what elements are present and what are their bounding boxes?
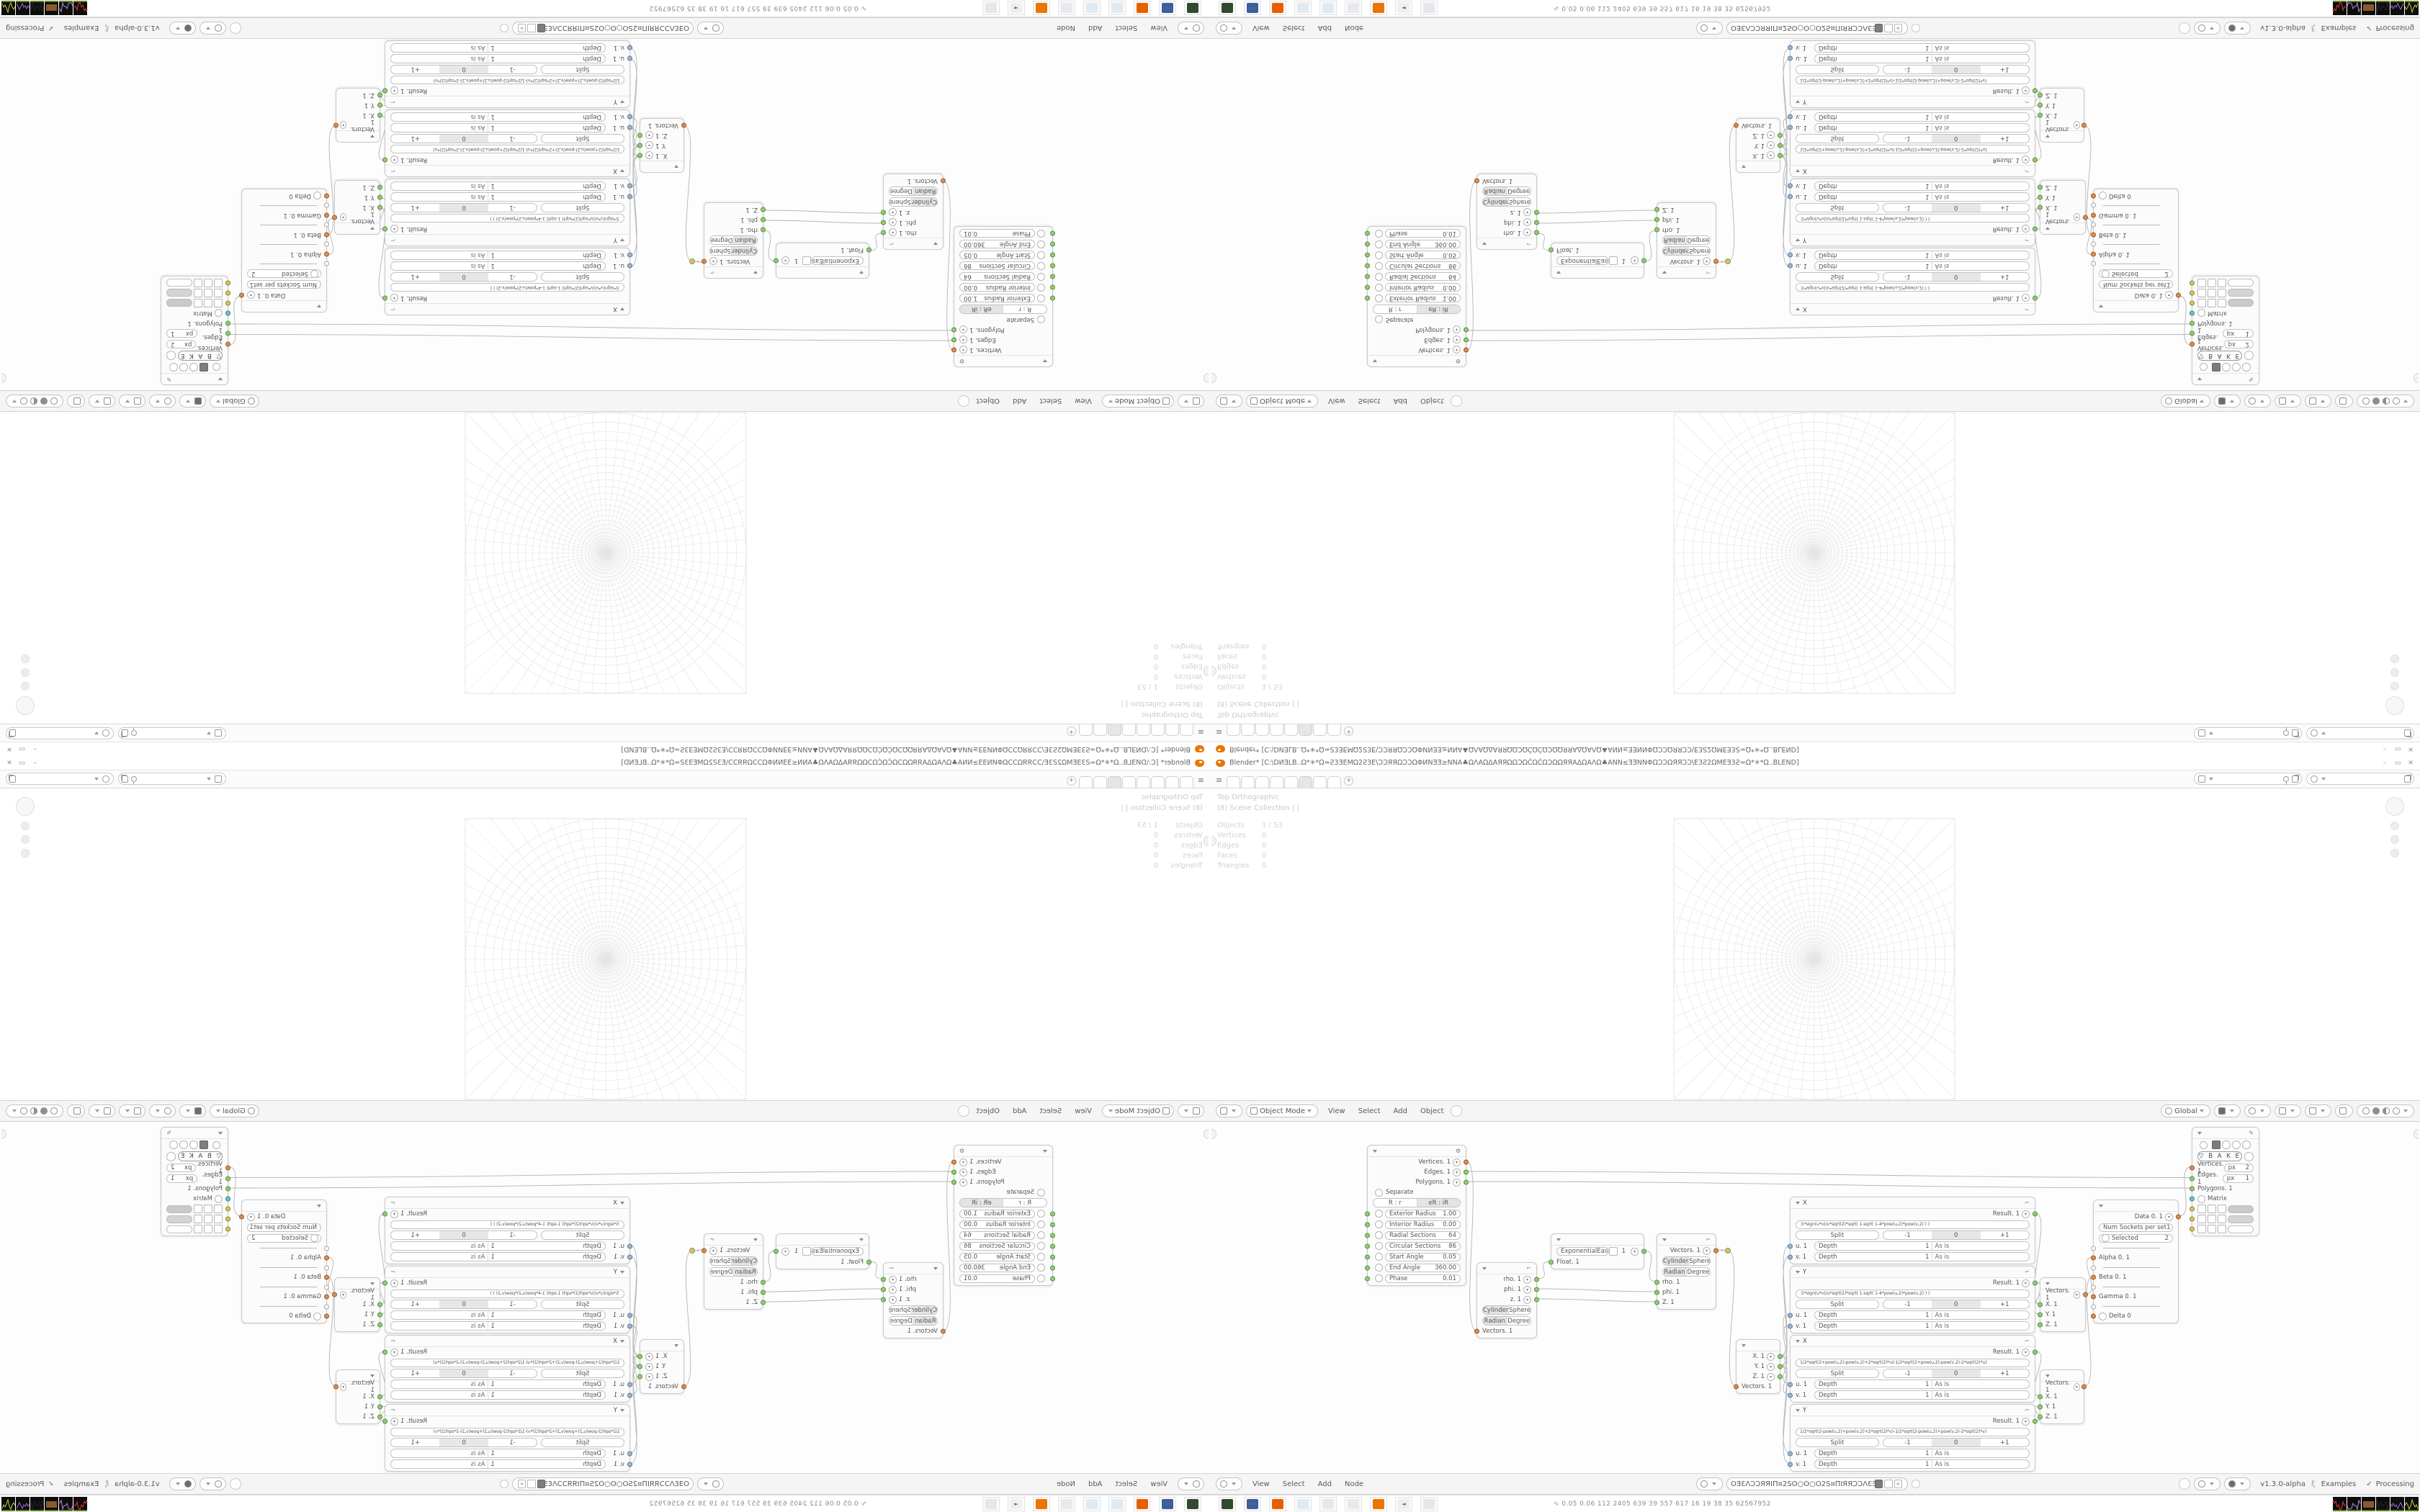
workspace-tab-4[interactable]	[1270, 776, 1283, 788]
add-workspace-button[interactable]: +	[1344, 726, 1353, 736]
firefox-icon[interactable]	[1269, 1, 1286, 16]
shading-material-icon[interactable]	[2383, 1107, 2390, 1115]
move-icon[interactable]	[21, 835, 30, 844]
input-socket[interactable]	[761, 207, 766, 212]
search-circle-button[interactable]	[1451, 1105, 1462, 1117]
vector-polar-output-node[interactable]: ⌐rho. 1▾phi. 1▾z. 1▾CylinderSphereRadian…	[1476, 174, 1537, 250]
formula-field[interactable]: 1/2*sqrt(2+pow(u,2)-pow(v,2)+2*sqrt(2)*u…	[1796, 145, 2030, 154]
draft-mode-button[interactable]	[169, 22, 196, 35]
viewport-3d[interactable]: Top Orthographic (8) Scene Collection | …	[1210, 788, 2420, 1100]
formula-field[interactable]: 1/2*sqrt(2-pow(u,2)+pow(v,2)+2*sqrt(2)*v…	[1796, 1428, 2030, 1436]
node-header[interactable]	[2094, 300, 2178, 312]
disk-utility-icon[interactable]	[1184, 1497, 1201, 1511]
menu-view[interactable]: View	[1150, 1480, 1168, 1488]
minimize-button[interactable]: –	[2380, 759, 2390, 768]
output-socket[interactable]	[2081, 123, 2087, 128]
node-header[interactable]: X⌐	[385, 1197, 629, 1209]
output-socket[interactable]	[1464, 1170, 1469, 1175]
node-header[interactable]: ⌐	[1657, 266, 1716, 278]
proportional-edit-toggle[interactable]	[149, 1104, 176, 1117]
input-socket[interactable]	[761, 1290, 766, 1295]
input-socket[interactable]	[324, 1275, 329, 1280]
input-socket[interactable]	[681, 123, 686, 128]
formula-field[interactable]: 1/2*sqrt(2+pow(u,2)-pow(v,2)+2*sqrt(2)*u…	[390, 145, 624, 154]
new-viewlayer-icon[interactable]	[9, 775, 16, 783]
menu-node[interactable]: Node	[1345, 1480, 1363, 1488]
formula-node-x2[interactable]: X⌐Result. 1▾1/2*sqrt(2+pow(u,2)-pow(v,2)…	[385, 1335, 630, 1403]
copy-datablock-icon[interactable]	[1884, 1480, 1892, 1488]
image-viewer-icon[interactable]	[1058, 1, 1075, 16]
input-socket[interactable]	[377, 1415, 382, 1420]
output-socket[interactable]	[1778, 133, 1783, 138]
input-socket[interactable]	[1654, 1290, 1659, 1295]
menu-add[interactable]: Add	[1394, 1107, 1407, 1115]
minimize-button[interactable]: –	[30, 759, 40, 768]
update-circle-button[interactable]	[2179, 1478, 2190, 1490]
shading-material-icon[interactable]	[30, 397, 37, 405]
output-socket[interactable]	[881, 230, 886, 235]
menu-select[interactable]: Select	[1283, 24, 1305, 32]
editor-type-button-node[interactable]	[1178, 22, 1204, 35]
shading-solid-icon[interactable]	[2372, 397, 2380, 405]
node-header[interactable]	[776, 266, 869, 278]
node-tree-name-field[interactable]: OƎƐΛƆƆЯЯIΠ¤2SO○O○O2S¤ΠIЯЯƆƆΛƐƎO ✕	[1726, 22, 1908, 35]
editor-type-button-node[interactable]	[1178, 1477, 1204, 1490]
vector-out-node[interactable]: X. 1▾Y. 1▾Z. 1▾Vectors. 1	[1736, 1339, 1780, 1394]
hex-editor-icon[interactable]: 64	[1159, 1, 1176, 16]
workspace-tab-7[interactable]	[1313, 724, 1327, 736]
input-socket[interactable]	[1549, 248, 1554, 253]
shading-material-icon[interactable]	[2383, 397, 2390, 405]
notepad-icon[interactable]	[1108, 1497, 1126, 1511]
zoom-icon[interactable]	[2390, 822, 2399, 830]
menu-add[interactable]: Add	[1088, 1480, 1102, 1488]
window-titlebar[interactable]: Blender* [C:\DИƎLΒ..Ω*✳*Ω≈Ƨ3ƎΕΜΩ2Ƨ3Ε\ƆƆЯ…	[0, 756, 1210, 770]
menu-select[interactable]: Select	[1039, 1107, 1062, 1115]
input-socket[interactable]	[2190, 311, 2195, 316]
menu-object[interactable]: Object	[1420, 397, 1444, 405]
formula-node-x1[interactable]: X⌐Result. 1▾.5*sign(u*v)/v*sqrt(2)*sqrt(…	[1790, 248, 2035, 315]
formula-field[interactable]: .5*sign(u*v)/v*sqrt(2)*sqrt( 1-sqrt( 1-4…	[390, 1220, 624, 1229]
workspace-tab-1[interactable]	[1227, 776, 1240, 788]
close-button[interactable]: ✕	[4, 759, 14, 768]
node-header[interactable]: ⌐	[1477, 238, 1536, 249]
output-socket[interactable]	[1464, 1160, 1469, 1165]
vector-polar-output-node[interactable]: ⌐rho. 1▾phi. 1▾z. 1▾CylinderSphereRadian…	[883, 174, 944, 250]
output-socket[interactable]	[2083, 215, 2088, 220]
node-header[interactable]: ⌐	[704, 1234, 763, 1246]
shading-rendered-icon[interactable]	[20, 1107, 27, 1115]
viewer-draw-node[interactable]: ✎▽ B A K EVertices. 1px2Edges. 1px1Polyg…	[161, 276, 228, 385]
node-header[interactable]: ✎	[2192, 373, 2259, 384]
mode-dropdown[interactable]: Object Mode	[1102, 395, 1174, 408]
input-socket[interactable]	[377, 113, 382, 118]
maximize-button[interactable]: ▭	[2393, 759, 2403, 768]
firefox-icon[interactable]	[1134, 1497, 1151, 1511]
input-socket[interactable]	[377, 103, 382, 108]
gizmo-toggle[interactable]	[119, 1104, 145, 1117]
output-socket[interactable]	[1464, 348, 1469, 353]
notepad2-icon[interactable]	[1083, 1, 1101, 16]
menu-hamburger-icon[interactable]: ≡	[1216, 775, 1222, 785]
input-socket[interactable]	[1654, 207, 1659, 212]
editor-type-button[interactable]	[1178, 1104, 1204, 1117]
ring-node[interactable]: ⚙Vertices. 1▾Edges. 1▾Polygons. 1▾Separa…	[1367, 1145, 1466, 1286]
input-socket[interactable]	[2038, 1302, 2043, 1308]
input-socket[interactable]	[866, 1260, 871, 1265]
shading-wireframe-icon[interactable]	[2362, 1107, 2370, 1115]
formula-node-x1[interactable]: X⌐Result. 1▾.5*sign(u*v)/v*sqrt(2)*sqrt(…	[385, 1197, 630, 1264]
output-socket[interactable]	[702, 259, 707, 264]
formula-node-y1[interactable]: Y⌐Result. 1▾.5*sign(u*v)/u*sqrt(2)*sqrt(…	[1790, 1266, 2035, 1333]
sverchok-node-editor[interactable]: ⚙Vertices. 1▾Edges. 1▾Polygons. 1▾Separa…	[0, 1122, 1210, 1473]
shading-mode-buttons[interactable]	[6, 395, 63, 408]
input-socket[interactable]	[2190, 321, 2195, 326]
node-header[interactable]: ⌐	[1657, 1234, 1716, 1246]
node-header[interactable]	[242, 300, 326, 312]
output-socket[interactable]	[1778, 143, 1783, 148]
viewport-nav-buttons[interactable]	[2390, 822, 2399, 858]
input-socket[interactable]	[2038, 1313, 2043, 1318]
maximize-button[interactable]: ▭	[17, 745, 27, 754]
input-socket[interactable]	[225, 1197, 230, 1202]
formula-node-y2[interactable]: Y⌐Result. 1▾1/2*sqrt(2-pow(u,2)+pow(v,2)…	[1790, 1404, 2035, 1472]
node-header[interactable]: Y⌐	[1791, 1405, 2035, 1416]
snap-toggle[interactable]	[2214, 395, 2241, 408]
formula-node-x2[interactable]: X⌐Result. 1▾1/2*sqrt(2+pow(u,2)-pow(v,2)…	[385, 109, 630, 177]
node-sidebar-tab[interactable]	[2414, 373, 2419, 383]
reroute-node[interactable]	[689, 1248, 695, 1254]
output-socket[interactable]	[382, 227, 387, 232]
output-socket[interactable]	[333, 123, 339, 128]
input-socket[interactable]	[2038, 1323, 2043, 1328]
audio-icon[interactable]: ◄	[1395, 1, 1412, 16]
node-header[interactable]: X⌐	[385, 1336, 629, 1347]
scene-selector[interactable]	[2194, 727, 2302, 739]
menu-select[interactable]: Select	[1358, 1107, 1381, 1115]
output-socket[interactable]	[2033, 1212, 2038, 1217]
node-header[interactable]: X⌐	[1791, 1197, 2035, 1209]
workspace-tab-6[interactable]	[1299, 724, 1312, 736]
node-header[interactable]: ⚙	[1368, 1146, 1466, 1157]
blender-app-icon[interactable]	[1370, 1497, 1387, 1511]
snap-toggle[interactable]	[2214, 1104, 2241, 1117]
workspace-tab-4[interactable]	[1270, 724, 1283, 736]
output-socket[interactable]	[382, 89, 387, 94]
formula-field[interactable]: 1/2*sqrt(2-pow(u,2)+pow(v,2)+2*sqrt(2)*v…	[390, 76, 624, 85]
input-socket[interactable]	[2038, 1405, 2043, 1410]
window-titlebar[interactable]: Blender* [C:\DИƎLΒ..Ω*✳*Ω≈Ƨ3ƎΕΜΩ2Ƨ3Ε\ƆƆЯ…	[0, 742, 1210, 756]
output-socket[interactable]	[637, 1354, 642, 1359]
output-socket[interactable]	[1778, 1354, 1783, 1359]
toolbar-flyout-tab[interactable]	[1204, 666, 1209, 676]
output-socket[interactable]	[382, 1212, 387, 1217]
move-icon[interactable]	[2390, 668, 2399, 677]
menu-view[interactable]: View	[1252, 24, 1270, 32]
ring-node[interactable]: ⚙Vertices. 1▾Edges. 1▾Polygons. 1▾Separa…	[954, 226, 1053, 367]
snap-toggle[interactable]	[179, 1104, 206, 1117]
output-socket[interactable]	[881, 220, 886, 225]
blender-app-icon[interactable]	[1033, 1, 1050, 16]
fake-user-shield-icon[interactable]	[1875, 1480, 1883, 1488]
copy-datablock-icon[interactable]	[1884, 24, 1892, 32]
output-socket[interactable]	[1464, 338, 1469, 343]
menu-hamburger-icon[interactable]: ≡	[1198, 727, 1204, 737]
input-socket[interactable]	[1474, 1329, 1479, 1334]
output-socket[interactable]	[2176, 1215, 2181, 1220]
output-socket[interactable]	[2033, 89, 2038, 94]
node-header[interactable]	[1736, 1340, 1780, 1351]
input-socket[interactable]	[2038, 1415, 2043, 1420]
window-titlebar[interactable]: Blender* [C:\DИƎLΒ..Ω*✳*Ω≈Ƨ3ƎΕΜΩ2Ƨ3Ε\ƆƆЯ…	[1210, 742, 2420, 756]
formula-field[interactable]: 1/2*sqrt(2+pow(u,2)-pow(v,2)+2*sqrt(2)*u…	[1796, 1359, 2030, 1367]
reroute-node[interactable]	[1725, 258, 1731, 264]
workspace-tab-2[interactable]	[1165, 776, 1179, 788]
vector-polar-input-node[interactable]: ⌐Vectors. 1▾CylinderSphereRadianDegreerh…	[1657, 1233, 1716, 1310]
image-viewer-icon[interactable]	[1345, 1, 1362, 16]
workspace-tab-5[interactable]	[1284, 724, 1298, 736]
output-socket[interactable]	[332, 215, 337, 220]
output-socket[interactable]	[881, 1287, 886, 1292]
image-viewer-icon[interactable]	[1058, 1497, 1075, 1511]
formula-node-x2[interactable]: X⌐Result. 1▾1/2*sqrt(2+pow(u,2)-pow(v,2)…	[1790, 109, 2035, 177]
output-socket[interactable]	[637, 143, 642, 148]
formula-node-x1[interactable]: X⌐Result. 1▾.5*sign(u*v)/v*sqrt(2)*sqrt(…	[1790, 1197, 2035, 1264]
input-socket[interactable]	[761, 217, 766, 222]
overlays-toggle[interactable]	[2305, 395, 2331, 408]
formula-node-y1[interactable]: Y⌐Result. 1▾.5*sign(u*v)/u*sqrt(2)*sqrt(…	[385, 179, 630, 246]
node-header[interactable]: Y⌐	[385, 234, 629, 246]
unlink-icon[interactable]: ✕	[1894, 24, 1902, 32]
vector-polar-output-node[interactable]: ⌐rho. 1▾phi. 1▾z. 1▾CylinderSphereRadian…	[883, 1262, 944, 1338]
formula-field[interactable]: 1/2*sqrt(2+pow(u,2)-pow(v,2)+2*sqrt(2)*u…	[390, 1359, 624, 1367]
input-socket[interactable]	[1734, 123, 1739, 128]
viewlayer-selector[interactable]	[6, 727, 114, 739]
easing-node[interactable]: ExponentialEaseIn▾1▾Float. 1	[1551, 1233, 1644, 1269]
notepad-icon[interactable]	[1294, 1, 1312, 16]
input-socket[interactable]	[761, 1280, 766, 1285]
node-header[interactable]	[1551, 266, 1644, 278]
output-socket[interactable]	[1534, 1297, 1539, 1302]
menu-node[interactable]: Node	[1345, 24, 1363, 32]
menu-node[interactable]: Node	[1057, 1480, 1075, 1488]
input-socket[interactable]	[1654, 1300, 1659, 1305]
vector-in-node-1[interactable]: Vectors. 1▾X. 1Y. 1Z. 1	[2040, 1277, 2086, 1332]
input-socket[interactable]	[761, 1300, 766, 1305]
add-workspace-button[interactable]: +	[1067, 776, 1076, 786]
new-viewlayer-icon[interactable]	[2404, 730, 2411, 737]
output-socket[interactable]	[382, 296, 387, 301]
input-socket[interactable]	[1474, 179, 1479, 184]
node-header[interactable]: ✎	[161, 1128, 228, 1139]
orientation-dropdown[interactable]: Global	[2161, 395, 2210, 408]
disk-utility-icon[interactable]	[1219, 1497, 1236, 1511]
close-button[interactable]: ✕	[2406, 745, 2416, 754]
overlays-toggle[interactable]	[89, 395, 115, 408]
xray-toggle[interactable]	[67, 1104, 85, 1117]
blender-app-icon[interactable]	[1370, 1, 1387, 16]
workspace-tab-2[interactable]	[1241, 776, 1255, 788]
node-header[interactable]: Y⌐	[1791, 96, 2035, 107]
formula-node-y1[interactable]: Y⌐Result. 1▾.5*sign(u*v)/u*sqrt(2)*sqrt(…	[385, 1266, 630, 1333]
input-socket[interactable]	[324, 1295, 329, 1300]
close-button[interactable]: ✕	[4, 745, 14, 754]
hex-editor-icon[interactable]: 64	[1244, 1, 1261, 16]
workspace-tab-1[interactable]	[1180, 724, 1193, 736]
gizmo-toggle[interactable]	[2275, 395, 2301, 408]
formula-field[interactable]: .5*sign(u*v)/u*sqrt(2)*sqrt( 1-sqrt( 1-4…	[1796, 1290, 2030, 1298]
formula-node-y2[interactable]: Y⌐Result. 1▾1/2*sqrt(2-pow(u,2)+pow(v,2)…	[385, 40, 630, 108]
workspace-tab-7[interactable]	[1313, 776, 1327, 788]
input-socket[interactable]	[324, 1314, 329, 1319]
output-socket[interactable]	[2176, 293, 2181, 298]
window-switcher-icon[interactable]	[982, 1497, 1000, 1511]
input-socket[interactable]	[2190, 1197, 2195, 1202]
node-header[interactable]	[640, 1340, 684, 1351]
input-socket[interactable]	[941, 1329, 946, 1334]
processing-check-icon[interactable]: ✓	[2366, 24, 2372, 32]
output-socket[interactable]	[951, 1180, 956, 1185]
draft-mode-button[interactable]	[2224, 22, 2251, 35]
unlink-icon[interactable]: ✕	[1894, 1480, 1902, 1488]
workspace-tab-8[interactable]	[1079, 724, 1093, 736]
shading-wireframe-icon[interactable]	[2362, 397, 2370, 405]
menu-select[interactable]: Select	[1283, 1480, 1305, 1488]
viewer-draw-node[interactable]: ✎▽ B A K EVertices. 1px2Edges. 1px1Polyg…	[161, 1127, 228, 1236]
viewlayer-selector[interactable]	[6, 773, 114, 785]
output-socket[interactable]	[1534, 210, 1539, 215]
examples-menu[interactable]: Examples	[2321, 24, 2357, 32]
examples-menu[interactable]: Examples	[2321, 1480, 2357, 1488]
disk-utility-icon[interactable]	[1219, 1, 1236, 16]
fake-user-shield-icon[interactable]	[537, 24, 545, 32]
navigation-gizmo[interactable]	[2385, 696, 2404, 715]
vector-in-node-1[interactable]: Vectors. 1▾X. 1Y. 1Z. 1	[334, 180, 380, 235]
search-circle-button[interactable]	[958, 395, 969, 407]
viewport-nav-buttons[interactable]	[21, 822, 30, 858]
viewport-nav-buttons[interactable]	[2390, 654, 2399, 690]
node-header[interactable]: ⌐	[884, 238, 943, 249]
workspace-tab-3[interactable]	[1151, 724, 1165, 736]
node-header[interactable]: ✎	[2192, 1128, 2259, 1139]
reroute-node[interactable]	[689, 258, 695, 264]
node-header[interactable]: X⌐	[385, 165, 629, 176]
input-socket[interactable]	[377, 1405, 382, 1410]
input-socket[interactable]	[2091, 1256, 2096, 1261]
camera-icon[interactable]	[21, 654, 30, 663]
camera-icon[interactable]	[2390, 849, 2399, 858]
shading-wireframe-icon[interactable]	[50, 1107, 58, 1115]
formula-node-y2[interactable]: Y⌐Result. 1▾1/2*sqrt(2-pow(u,2)+pow(v,2)…	[385, 1404, 630, 1472]
menu-view[interactable]: View	[1252, 1480, 1270, 1488]
input-socket[interactable]	[377, 185, 382, 190]
navigation-gizmo[interactable]	[2385, 797, 2404, 816]
pin-icon[interactable]	[131, 731, 137, 737]
draft-mode-button[interactable]	[2224, 1477, 2251, 1490]
vector-in-node-1[interactable]: Vectors. 1▾X. 1Y. 1Z. 1	[334, 1277, 380, 1332]
workspace-tab-7[interactable]	[1093, 724, 1107, 736]
overlays-toggle[interactable]	[2305, 1104, 2331, 1117]
menu-view[interactable]: View	[1075, 397, 1092, 405]
output-socket[interactable]	[1534, 220, 1539, 225]
input-socket[interactable]	[1654, 228, 1659, 233]
menu-select[interactable]: Select	[1358, 397, 1381, 405]
update-circle-button[interactable]	[230, 1478, 241, 1490]
menu-select[interactable]: Select	[1115, 24, 1137, 32]
menu-add[interactable]: Add	[1013, 1107, 1026, 1115]
audio-icon[interactable]: ◄	[1008, 1, 1025, 16]
tree-type-button[interactable]	[697, 1477, 724, 1490]
bake-button[interactable]: ▽ B A K E	[2197, 351, 2242, 361]
output-socket[interactable]	[1778, 1374, 1783, 1380]
output-socket[interactable]	[951, 338, 956, 343]
node-header[interactable]	[2094, 1200, 2178, 1212]
node-header[interactable]: X⌐	[1791, 165, 2035, 176]
workspace-tab-4[interactable]	[1137, 724, 1150, 736]
easing-node[interactable]: ExponentialEaseIn▾1▾Float. 1	[776, 1233, 869, 1269]
output-socket[interactable]	[382, 1350, 387, 1355]
node-tree-name-field[interactable]: OƎƐΛƆƆЯЯIΠ¤2SO○O○O2S¤ΠIЯЯƆƆΛƐƎO ✕	[512, 1477, 694, 1490]
input-socket[interactable]	[2091, 1314, 2096, 1319]
tree-type-button[interactable]	[1696, 22, 1723, 35]
maximize-button[interactable]: ▭	[2393, 745, 2403, 754]
search-circle-button[interactable]	[1451, 395, 1462, 407]
input-socket[interactable]	[761, 228, 766, 233]
workspace-tab-6[interactable]	[1299, 776, 1312, 788]
tree-type-button[interactable]	[697, 22, 724, 35]
shading-solid-icon[interactable]	[40, 397, 48, 405]
output-socket[interactable]	[382, 1281, 387, 1286]
output-socket[interactable]	[2033, 296, 2038, 301]
mode-dropdown[interactable]: Object Mode	[1246, 1104, 1318, 1117]
formula-field[interactable]: .5*sign(u*v)/v*sqrt(2)*sqrt( 1-sqrt( 1-4…	[1796, 284, 2030, 292]
formula-node-y1[interactable]: Y⌐Result. 1▾.5*sign(u*v)/u*sqrt(2)*sqrt(…	[1790, 179, 2035, 246]
minimize-button[interactable]: –	[30, 745, 40, 754]
menu-view[interactable]: View	[1150, 24, 1168, 32]
proportional-edit-toggle[interactable]	[2244, 1104, 2271, 1117]
node-header[interactable]	[640, 161, 684, 172]
output-socket[interactable]	[2033, 227, 2038, 232]
window-switcher-icon[interactable]	[982, 1, 1000, 16]
image-viewer-icon[interactable]	[1345, 1497, 1362, 1511]
formula-node-y2[interactable]: Y⌐Result. 1▾1/2*sqrt(2-pow(u,2)+pow(v,2)…	[1790, 40, 2035, 108]
tree-type-button[interactable]	[1696, 1477, 1723, 1490]
xray-toggle[interactable]	[2335, 1104, 2353, 1117]
easing-node[interactable]: ExponentialEaseIn▾1▾Float. 1	[1551, 243, 1644, 279]
fake-user-shield-icon[interactable]	[537, 1480, 545, 1488]
formula-field[interactable]: 1/2*sqrt(2-pow(u,2)+pow(v,2)+2*sqrt(2)*v…	[1796, 76, 2030, 85]
disk-utility-icon[interactable]	[1184, 1, 1201, 16]
formula-node-x2[interactable]: X⌐Result. 1▾1/2*sqrt(2+pow(u,2)-pow(v,2)…	[1790, 1335, 2035, 1403]
input-socket[interactable]	[377, 1395, 382, 1400]
viewport-3d[interactable]: Top Orthographic (8) Scene Collection | …	[0, 412, 1210, 724]
menu-add[interactable]: Add	[1318, 1480, 1332, 1488]
notepad2-icon[interactable]	[1319, 1497, 1337, 1511]
bake-all-button[interactable]	[200, 22, 226, 35]
input-socket[interactable]	[324, 194, 329, 199]
input-socket[interactable]	[377, 1323, 382, 1328]
shading-material-icon[interactable]	[30, 1107, 37, 1115]
vector-in-node-2[interactable]: Vectors. 1▾X. 1Y. 1Z. 1	[2040, 1369, 2084, 1424]
sverchok-node-editor[interactable]: ⚙Vertices. 1▾Edges. 1▾Polygons. 1▾Separa…	[1210, 39, 2420, 390]
output-socket[interactable]	[1534, 1287, 1539, 1292]
gizmo-toggle[interactable]	[2275, 1104, 2301, 1117]
input-socket[interactable]	[2091, 1275, 2096, 1280]
input-socket[interactable]	[324, 252, 329, 257]
vector-polar-input-node[interactable]: ⌐Vectors. 1▾CylinderSphereRadianDegreerh…	[1657, 202, 1716, 279]
audio-icon[interactable]: ◄	[1395, 1497, 1412, 1511]
input-socket[interactable]	[2091, 233, 2096, 238]
